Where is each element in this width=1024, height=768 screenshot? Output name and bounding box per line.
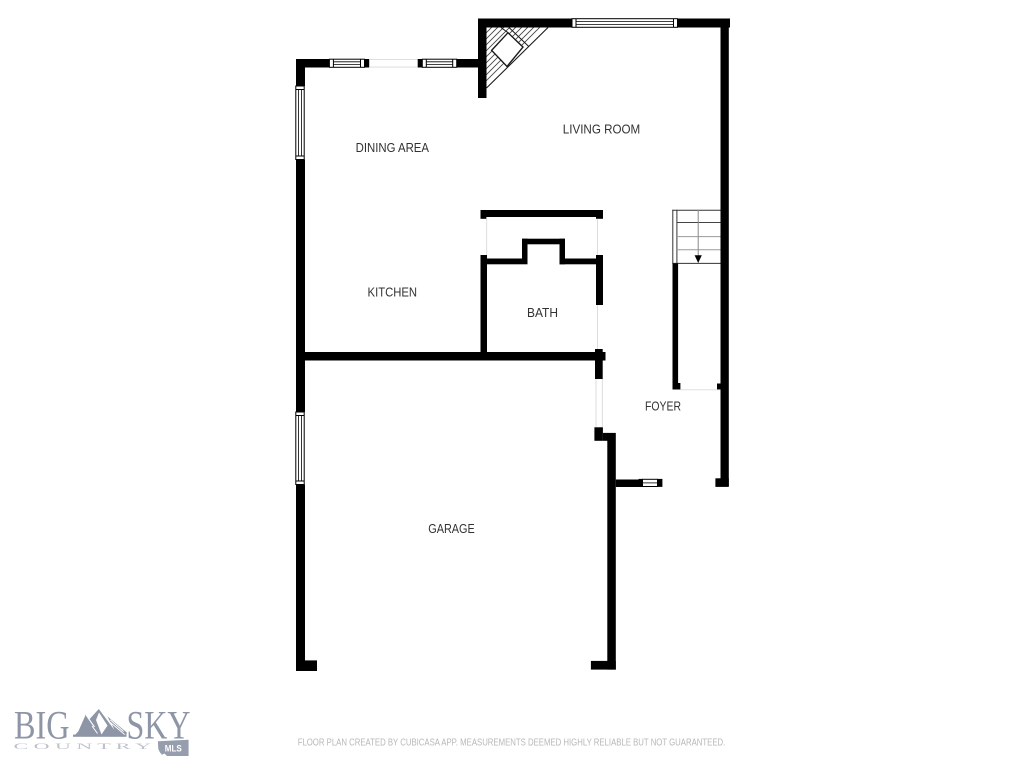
svg-text:FOYER: FOYER [645, 398, 681, 413]
svg-text:C O U N T R Y: C O U N T R Y [14, 741, 152, 751]
svg-text:BATH: BATH [527, 305, 558, 320]
svg-text:DINING AREA: DINING AREA [356, 140, 430, 155]
svg-text:GARAGE: GARAGE [428, 521, 475, 536]
svg-text:KITCHEN: KITCHEN [368, 284, 418, 299]
svg-text:FLOOR PLAN CREATED BY CUBICASA: FLOOR PLAN CREATED BY CUBICASA APP. MEAS… [298, 737, 726, 748]
svg-text:MLS: MLS [165, 743, 182, 754]
svg-text:LIVING ROOM: LIVING ROOM [563, 122, 641, 137]
